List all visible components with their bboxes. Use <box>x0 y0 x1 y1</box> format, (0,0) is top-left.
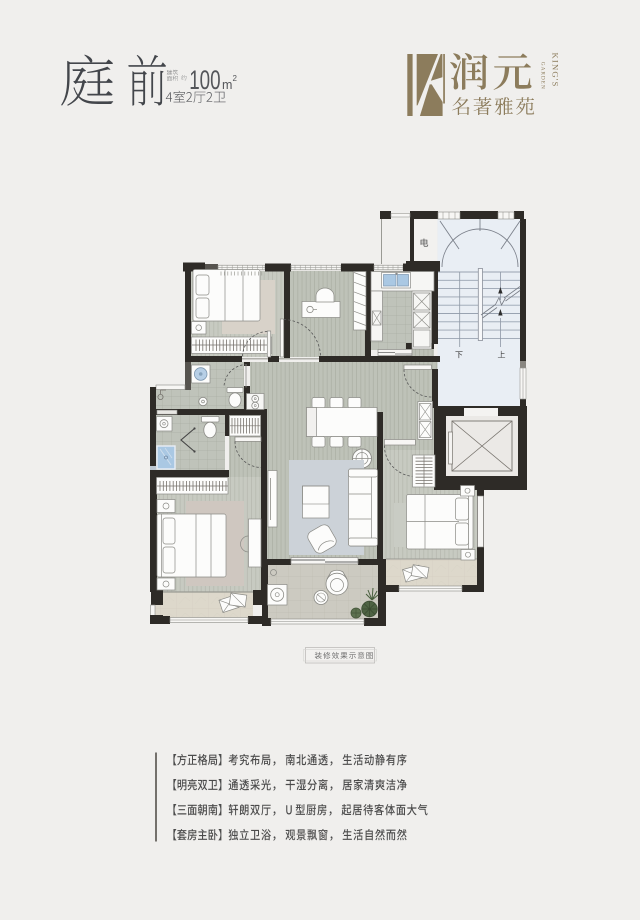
svg-text:GARDEN: GARDEN <box>539 62 545 90</box>
svg-text:KING'S: KING'S <box>550 53 560 88</box>
svg-text:100: 100 <box>189 65 220 95</box>
svg-text:m: m <box>222 78 232 92</box>
svg-text:2: 2 <box>233 74 238 83</box>
